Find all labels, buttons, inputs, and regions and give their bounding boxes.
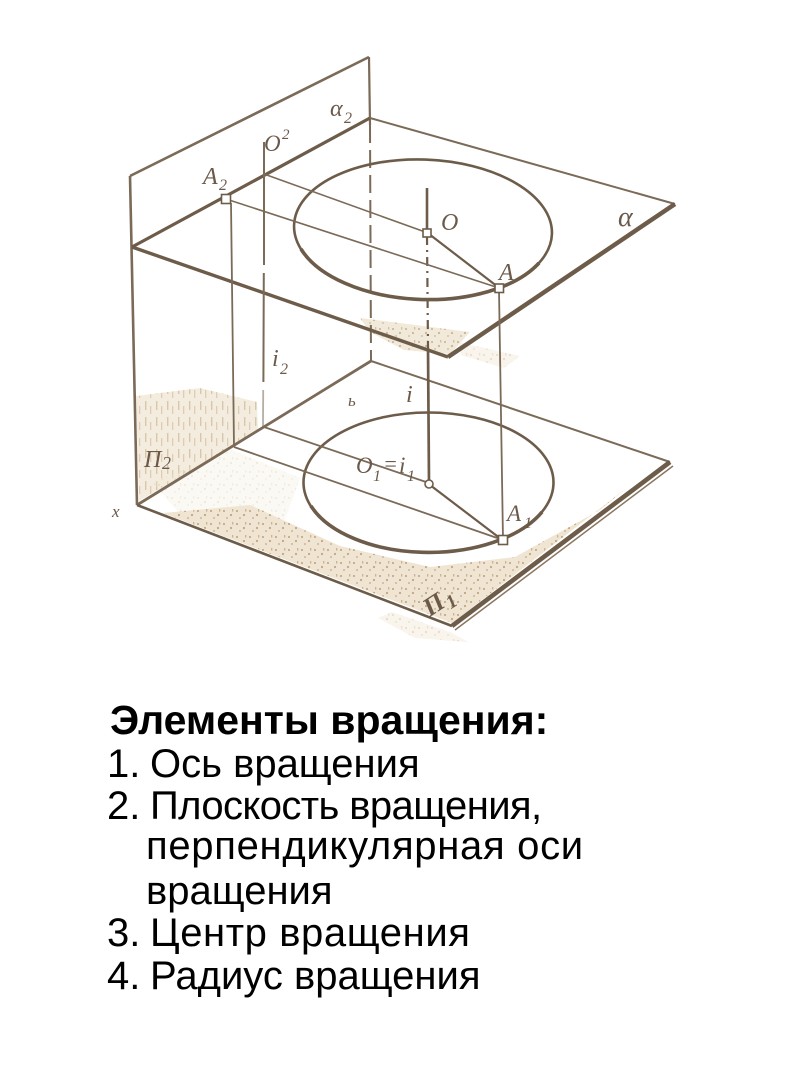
svg-text:O: O [264, 131, 281, 156]
svg-text:Π: Π [143, 447, 163, 473]
svg-text:i: i [399, 453, 405, 478]
svg-text:O: O [356, 453, 373, 478]
svg-text:2: 2 [219, 177, 227, 194]
svg-text:i: i [406, 382, 413, 408]
svg-text:A: A [497, 260, 514, 286]
svg-text:A: A [201, 164, 218, 190]
svg-text:x: x [111, 502, 120, 521]
svg-text:1: 1 [407, 468, 415, 485]
svg-text:1: 1 [373, 468, 381, 485]
svg-text:2: 2 [162, 453, 171, 473]
svg-text:α: α [618, 202, 634, 233]
svg-text:2: 2 [282, 127, 290, 143]
svg-text:O: O [441, 210, 458, 236]
svg-text:1: 1 [524, 515, 532, 532]
svg-text:α: α [330, 96, 343, 122]
svg-text:2: 2 [280, 361, 288, 378]
svg-text:ь: ь [348, 391, 356, 410]
svg-text:i: i [272, 346, 279, 372]
svg-text:2: 2 [344, 110, 352, 127]
svg-text:=: = [383, 451, 398, 476]
svg-text:A: A [505, 501, 522, 526]
